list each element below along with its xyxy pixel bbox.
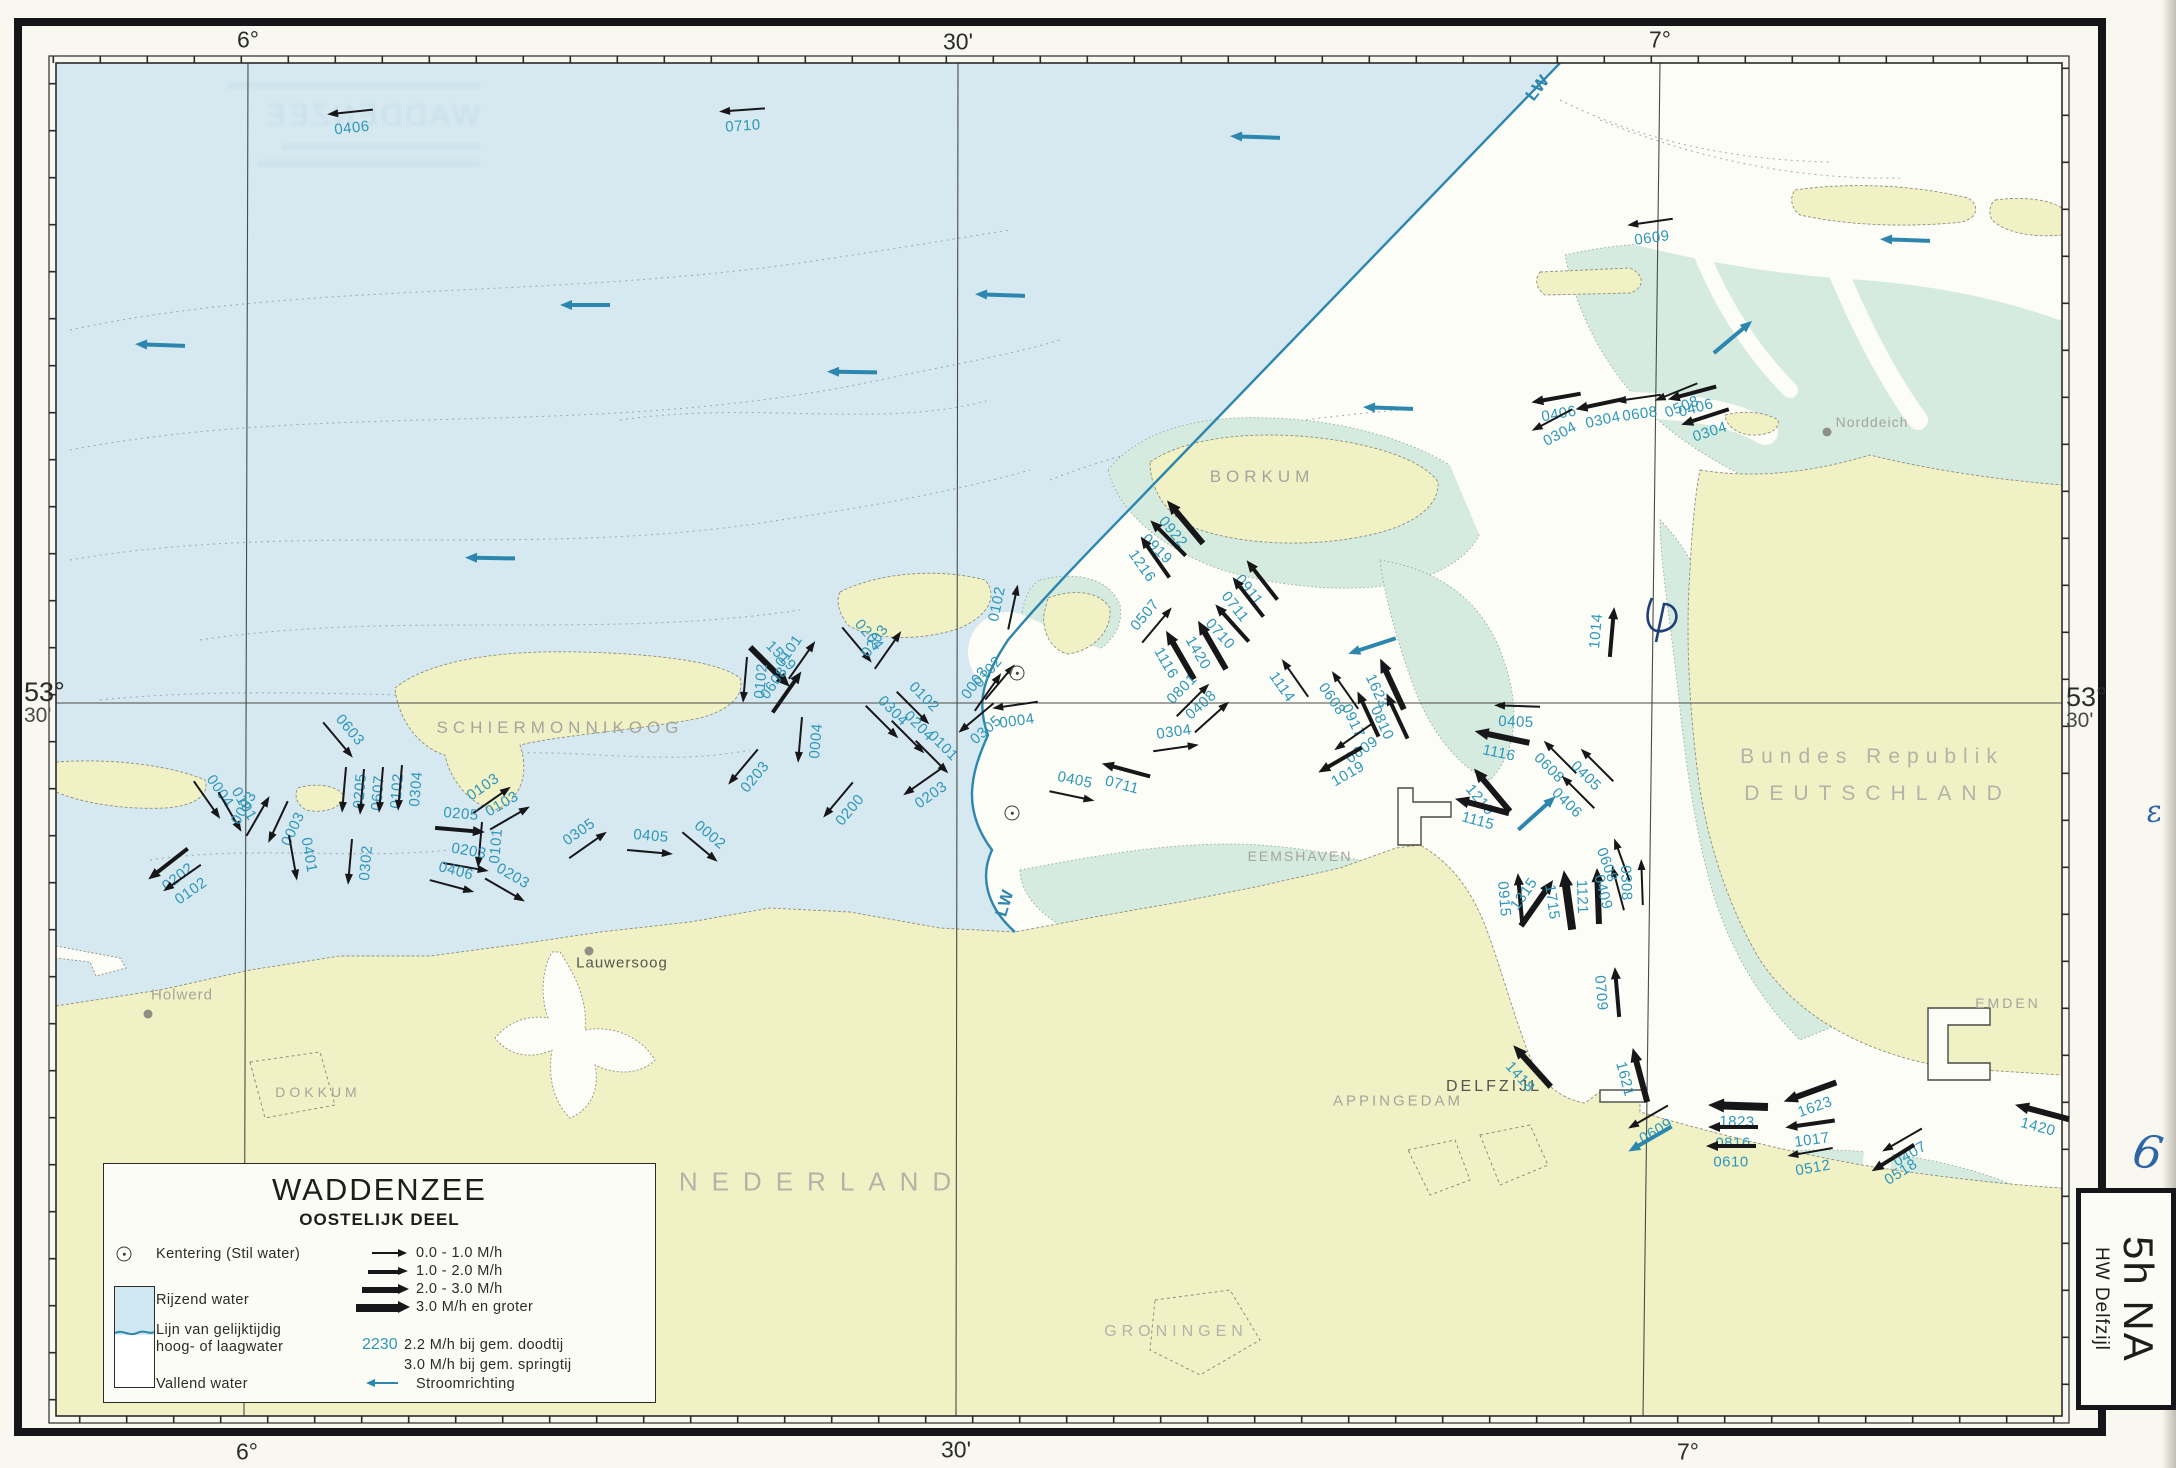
arrow-shaft — [1640, 868, 1644, 905]
latitude-minutes: 30' — [2066, 711, 2107, 731]
current-arrow — [327, 110, 373, 115]
arrow-shaft — [1503, 704, 1540, 708]
arrow-head — [518, 803, 532, 815]
current-speed-label: 0610 — [1713, 1154, 1748, 1171]
kentering-symbol — [1010, 666, 1025, 681]
current-speed-label: 0304 — [406, 771, 426, 808]
current-speed-label: 0304 — [1690, 419, 1729, 446]
town-dot — [585, 947, 594, 956]
legend-kentering-label: Kentering (Stil water) — [156, 1246, 300, 1262]
place-label: BORKUM — [1210, 467, 1315, 487]
arrow-head — [560, 300, 572, 310]
arrow-head — [375, 802, 384, 814]
current-speed-label: 0101 — [925, 727, 962, 764]
current-speed-label: 0102 — [985, 585, 1009, 623]
graticule-degree-label: 7° — [1677, 1439, 1699, 1466]
arrow-head — [1012, 584, 1022, 596]
arrow-shaft — [1718, 1125, 1758, 1129]
legend-sample-line1: 2.2 M/h bij gem. doodtij — [404, 1337, 564, 1353]
arrow-shaft — [1240, 134, 1280, 139]
arrow-head — [1347, 645, 1362, 658]
arrow-head — [356, 804, 365, 816]
current-arrow — [743, 657, 747, 703]
arrow-shaft — [1541, 392, 1581, 403]
kentering-symbol — [117, 1247, 132, 1262]
graticule-degree-label: 30' — [941, 1437, 971, 1464]
current-speed-label: 0405 — [633, 826, 670, 846]
current-arrow — [1615, 967, 1619, 1017]
current-arrow — [1627, 219, 1673, 225]
current-speed-label: 0002 — [691, 817, 729, 853]
arrow-shaft — [798, 717, 804, 754]
speed-class-2: 1.0 - 2.0 M/h — [416, 1263, 503, 1279]
current-direction-arrow — [1363, 407, 1413, 409]
town-dot — [144, 1010, 153, 1019]
current-speed-label: 0608 — [1622, 403, 1659, 425]
current-speed-label: 0603 — [332, 711, 368, 749]
arrow-head — [291, 869, 301, 881]
arrow-head — [1101, 759, 1115, 772]
current-arrow — [342, 767, 346, 813]
arrow-shaft — [570, 303, 610, 307]
current-arrow — [1153, 745, 1199, 751]
arrow-shaft — [1049, 790, 1086, 800]
arrow-shaft — [1614, 977, 1621, 1017]
current-direction-arrow — [975, 294, 1025, 296]
place-label: Bundes Republik — [1740, 745, 2004, 769]
current-direction-arrow — [1880, 239, 1930, 241]
arrow-head — [1473, 725, 1489, 740]
current-arrow — [992, 702, 1038, 708]
graticule-degree-label: 6° — [236, 1439, 258, 1466]
place-label: SCHIERMONNIKOOG — [437, 718, 684, 738]
stroomrichting-arrow — [372, 1382, 398, 1384]
arrow-head — [707, 852, 721, 865]
arrow-head — [794, 752, 803, 764]
arrow-head — [513, 893, 527, 905]
current-direction-arrow — [135, 344, 185, 346]
current-direction-arrow — [1230, 136, 1280, 138]
graticule-degree-label: 30' — [943, 29, 973, 56]
scanned-tidal-chart: WADDENZEE 6°30'7°6°30'7°53°30'53°30'SCHI… — [0, 0, 2176, 1468]
arrow-shaft — [1713, 326, 1746, 355]
arrow-shaft — [342, 767, 348, 804]
arrow-head — [265, 831, 277, 844]
current-direction-arrow — [465, 558, 515, 559]
speed-arrow-2-head — [398, 1267, 408, 1275]
arrow-head — [1880, 234, 1892, 244]
arrow-head — [394, 800, 403, 812]
arrow-head — [1363, 402, 1375, 412]
latitude-degrees: 53° — [24, 680, 65, 706]
current-speed-label: 0305 — [559, 815, 598, 849]
arrow-shaft — [1722, 1101, 1768, 1111]
current-arrow — [1475, 731, 1530, 743]
arrow-head — [1531, 395, 1545, 407]
current-speed-label: 0406 — [333, 118, 370, 139]
arrow-head — [1627, 220, 1639, 229]
stroomrichting-arrow-head — [366, 1379, 375, 1387]
current-arrow — [1785, 1121, 1835, 1128]
arrow-shaft — [1007, 593, 1017, 630]
arrow-shaft — [1001, 701, 1038, 709]
arrow-head — [1557, 869, 1573, 887]
arrow-head — [719, 107, 731, 116]
current-speed-label: 1116 — [1481, 741, 1517, 765]
current-speed-label: 0004 — [999, 710, 1036, 732]
speed-arrow-3 — [362, 1287, 398, 1293]
graticule-degree-label: 7° — [1649, 27, 1671, 54]
arrow-head — [1787, 1150, 1799, 1160]
current-direction-arrow — [1714, 321, 1752, 353]
place-label: GRONINGEN — [1104, 1323, 1248, 1341]
current-speed-label: 0401 — [297, 836, 320, 874]
arrow-head — [739, 692, 748, 704]
arrow-shaft — [1890, 237, 1930, 242]
current-arrow — [627, 850, 673, 854]
kentering-symbol — [1005, 806, 1020, 821]
graticule-degree-label: 6° — [237, 27, 259, 54]
current-speed-label: 1715 — [1541, 884, 1563, 921]
arrow-shaft — [743, 657, 749, 694]
current-speed-label: 0304 — [1584, 408, 1622, 432]
arrow-head — [463, 885, 476, 896]
current-arrow — [798, 717, 802, 763]
arrow-head — [1608, 607, 1619, 620]
arrow-head — [1494, 701, 1505, 709]
legend-lijn-label-1: Lijn van gelijktijdig — [156, 1322, 281, 1338]
current-speed-label: 0203 — [450, 840, 488, 863]
place-label: NEDERLAND — [679, 1167, 965, 1198]
arrow-shaft — [1153, 745, 1190, 753]
arrow-head — [975, 289, 987, 299]
arrow-head — [344, 874, 353, 886]
speed-arrow-1 — [372, 1252, 398, 1254]
handwritten-mark: 6 — [2129, 1123, 2167, 1181]
arrow-head — [1453, 793, 1470, 808]
current-direction-arrow — [1518, 796, 1555, 829]
legend-sample-line2: 3.0 M/h bij gem. springtij — [404, 1357, 572, 1373]
current-arrow — [435, 828, 485, 832]
arrow-head — [1187, 741, 1199, 750]
speed-class-3: 2.0 - 3.0 M/h — [416, 1281, 503, 1297]
current-arrow — [1050, 791, 1095, 801]
arrow-shaft — [1357, 636, 1396, 652]
arrow-shaft — [1373, 405, 1413, 410]
arrow-head — [1637, 859, 1645, 870]
arrow-head — [2013, 1099, 2030, 1114]
tab-hour-label: 5h NA — [2114, 1236, 2162, 1363]
arrow-shaft — [837, 370, 877, 375]
current-speed-label: 0004 — [806, 723, 826, 760]
place-label: Lauwersoog — [576, 955, 668, 972]
legend-water-swatch — [114, 1286, 155, 1388]
current-arrow — [1008, 585, 1018, 630]
legend-vallend-label: Vallend water — [156, 1376, 248, 1392]
speed-class-1: 0.0 - 1.0 M/h — [416, 1245, 503, 1261]
arrow-head — [662, 849, 674, 858]
arrow-shaft — [627, 849, 664, 855]
current-arrow — [1787, 1148, 1832, 1156]
arrow-head — [135, 339, 147, 349]
speed-arrow-4-head — [398, 1301, 410, 1313]
current-speed-label: 0405 — [1056, 768, 1094, 792]
legend-sample-value: 2230 — [362, 1336, 398, 1354]
current-arrow — [719, 108, 765, 111]
speed-class-4: 3.0 M/h en groter — [416, 1299, 533, 1315]
arrow-shaft — [348, 839, 354, 876]
arrow-head — [992, 703, 1004, 712]
current-speed-label: 0609 — [1634, 227, 1671, 249]
current-speed-label: 0405 — [1498, 713, 1534, 731]
low-water-line-label: LW — [991, 887, 1018, 919]
arrow-shaft — [145, 342, 185, 347]
place-label: EMDEN — [1975, 995, 2041, 1011]
arrow-head — [1083, 795, 1095, 805]
arrow-shaft — [1716, 1144, 1756, 1148]
arrow-head — [1706, 1141, 1718, 1151]
current-speed-label: 0816 — [1715, 1135, 1750, 1152]
current-speed-label: 0406 — [437, 858, 476, 884]
current-speed-label: 0512 — [1794, 1156, 1832, 1179]
arrow-head — [1575, 402, 1589, 414]
legend-lijn-label-2: hoog- of laagwater — [156, 1339, 283, 1355]
current-speed-label: 0205 — [443, 804, 480, 824]
arrow-head — [1615, 396, 1627, 405]
arrow-head — [477, 865, 489, 875]
arrow-head — [338, 802, 347, 814]
current-arrow — [1564, 870, 1572, 929]
current-speed-label: 0709 — [1591, 975, 1611, 1012]
legend-box: WADDENZEE OOSTELIJK DEEL Kentering (Stil… — [103, 1163, 656, 1403]
tab-reference-label: HW Delfzijl — [2090, 1247, 2112, 1351]
low-water-line-label: LW — [1522, 71, 1555, 105]
current-speed-label: 0507 — [1127, 596, 1163, 634]
current-speed-label: 1121 — [1573, 879, 1591, 914]
arrow-head — [827, 367, 839, 377]
place-label: APPINGEDAM — [1333, 1093, 1463, 1110]
speed-arrow-4 — [356, 1304, 398, 1312]
current-speed-label: 0308 — [1617, 865, 1635, 901]
arrow-head — [327, 109, 339, 118]
arrow-head — [1627, 1046, 1642, 1063]
arrow-shaft — [435, 826, 475, 833]
arrow-shaft — [1517, 801, 1549, 831]
arrow-head — [1680, 416, 1695, 429]
current-speed-label: 0710 — [725, 116, 761, 135]
latitude-minutes: 30' — [24, 706, 65, 726]
latitude-label-right: 53°30' — [2066, 685, 2107, 731]
current-speed-label: 1014 — [1586, 612, 1606, 649]
town-dot — [1823, 428, 1832, 437]
arrow-head — [465, 553, 477, 563]
arrow-head — [1708, 1098, 1724, 1113]
place-label: DEUTSCHLAND — [1744, 782, 2012, 806]
speed-arrow-1-head — [398, 1249, 407, 1257]
arrow-shaft — [985, 292, 1025, 297]
place-label: Norddeich — [1836, 414, 1909, 430]
arrow-shaft — [336, 108, 373, 114]
legend-stroomrichting-label: Stroomrichting — [416, 1376, 515, 1392]
arrow-head — [1610, 837, 1621, 850]
speed-arrow-3-head — [398, 1284, 409, 1294]
arrow-head — [211, 808, 224, 822]
current-speed-label: 0711 — [1103, 773, 1140, 798]
arrow-head — [1708, 1122, 1720, 1132]
place-label: DOKKUM — [275, 1084, 360, 1100]
legend-title: WADDENZEE — [104, 1172, 655, 1208]
place-label: Holwerd — [151, 987, 213, 1004]
latitude-label-left: 53°30' — [24, 680, 65, 726]
place-label: EEMSHAVEN — [1248, 848, 1353, 864]
current-speed-label: 1420 — [2019, 1115, 2058, 1141]
speed-arrow-2 — [368, 1270, 398, 1274]
chart-hour-tab: HW Delfzijl 5h NA — [2076, 1188, 2176, 1410]
current-arrow — [1531, 394, 1580, 403]
current-speed-label: 0101 — [486, 828, 506, 865]
current-arrow — [1708, 1105, 1768, 1107]
current-direction-arrow — [827, 372, 877, 373]
handwritten-mark: ε — [2144, 794, 2165, 831]
current-speed-label: 0302 — [356, 845, 376, 882]
arrow-shaft — [475, 556, 515, 561]
current-arrow — [1641, 859, 1643, 905]
current-direction-arrow — [1348, 638, 1396, 653]
arrow-shaft — [1636, 218, 1673, 226]
current-speed-label: 0304 — [1155, 721, 1192, 743]
arrow-head — [1230, 131, 1242, 141]
latitude-degrees: 53° — [2066, 685, 2107, 711]
arrow-shaft — [728, 107, 765, 112]
legend-rijzend-label: Rijzend water — [156, 1292, 249, 1308]
arrow-shaft — [1608, 617, 1615, 657]
legend-subtitle: OOSTELIJK DEEL — [104, 1210, 655, 1230]
current-arrow — [1494, 705, 1540, 707]
current-arrow — [348, 839, 352, 885]
arrow-head — [1785, 1121, 1798, 1133]
current-arrow — [1610, 607, 1614, 657]
arrow-shaft — [1633, 1059, 1650, 1103]
arrow-head — [1610, 967, 1621, 980]
